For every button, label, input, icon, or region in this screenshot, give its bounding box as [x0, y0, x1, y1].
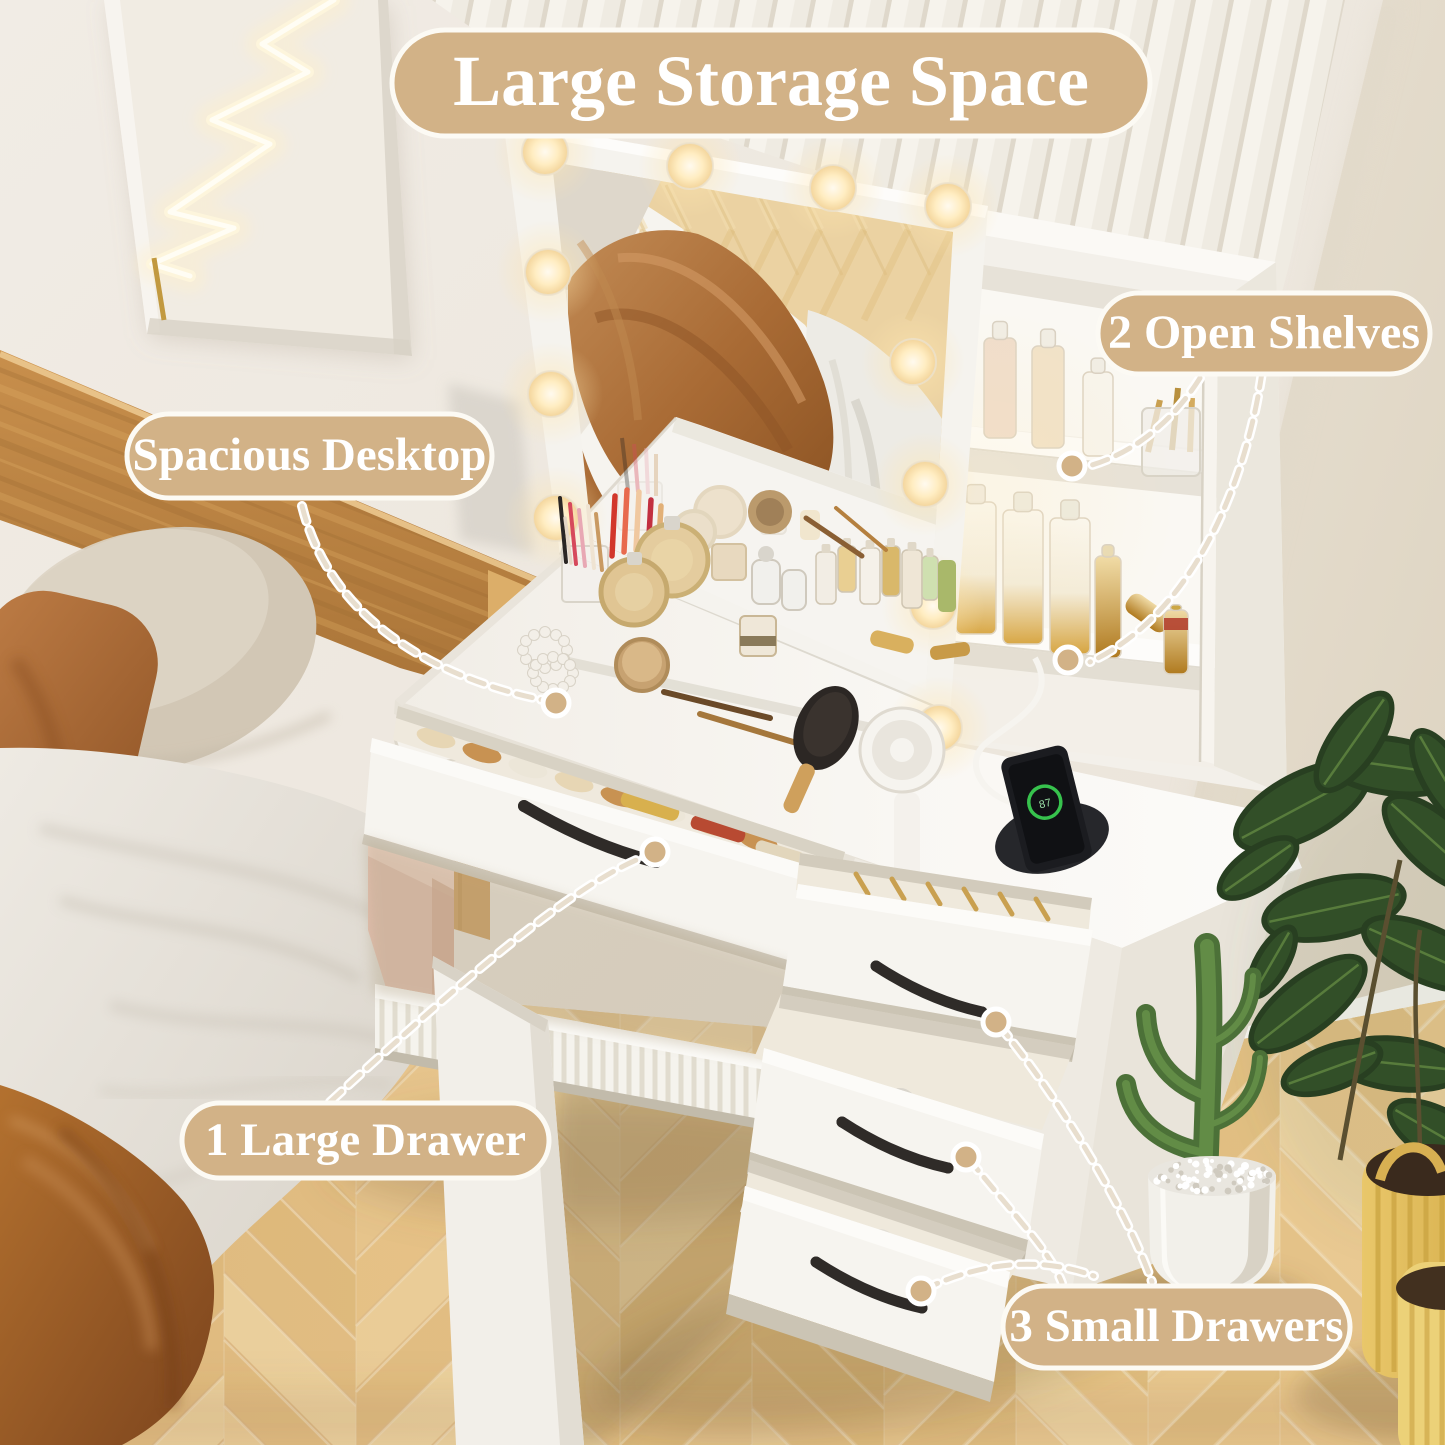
svg-text:2 Open Shelves: 2 Open Shelves — [1108, 306, 1420, 359]
svg-text:3 Small Drawers: 3 Small Drawers — [1009, 1300, 1343, 1352]
svg-text:1 Large Drawer: 1 Large Drawer — [205, 1114, 526, 1166]
svg-text:Spacious Desktop: Spacious Desktop — [133, 429, 487, 481]
svg-text:Large Storage Space: Large Storage Space — [453, 41, 1089, 121]
